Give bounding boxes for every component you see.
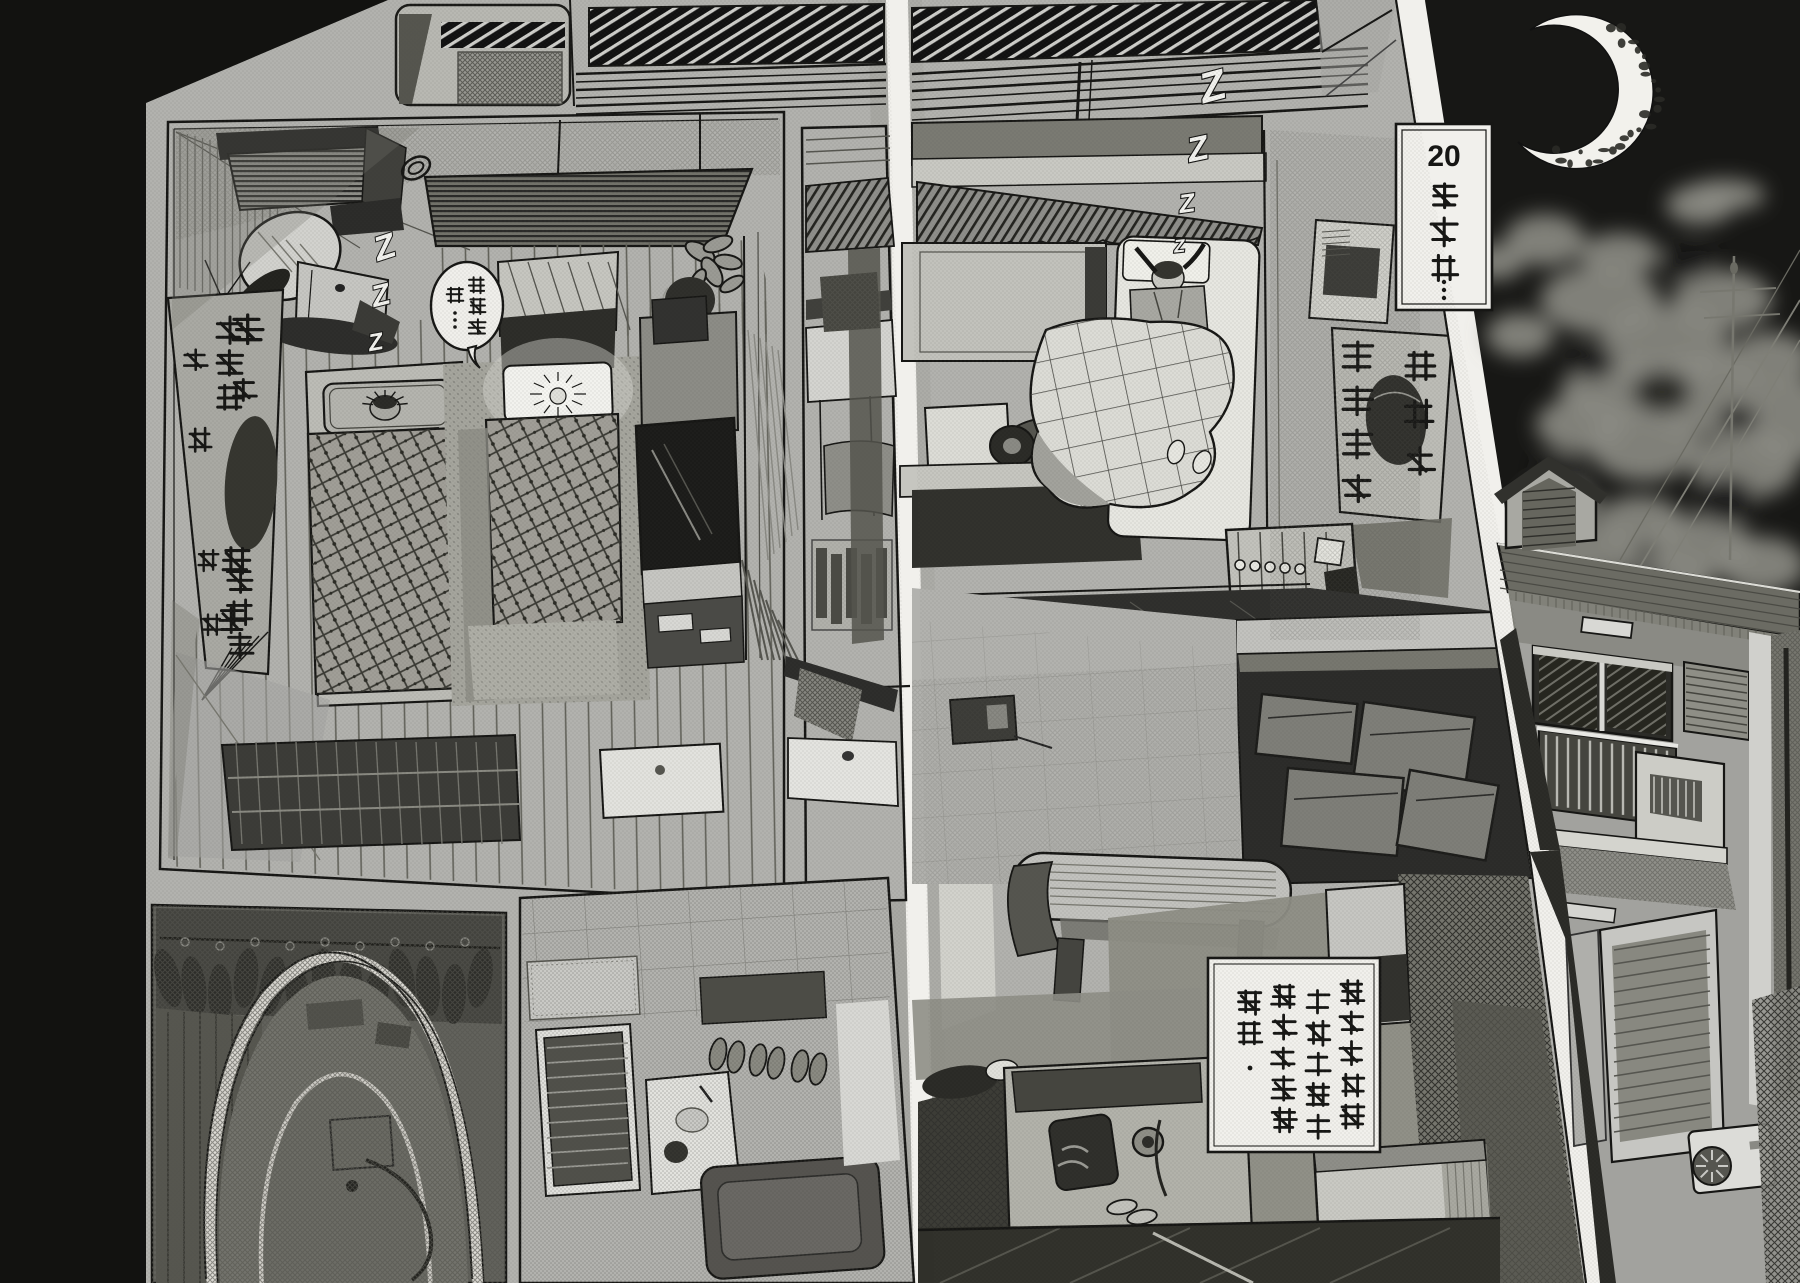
svg-text:20: 20	[1427, 140, 1460, 173]
